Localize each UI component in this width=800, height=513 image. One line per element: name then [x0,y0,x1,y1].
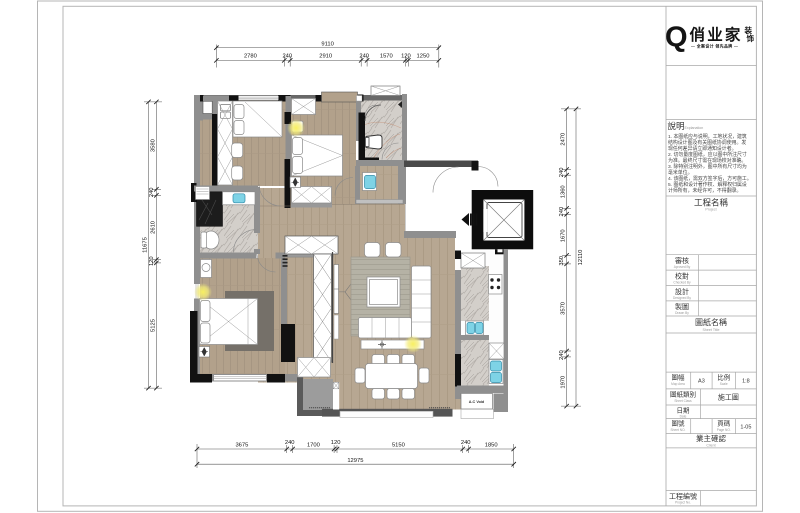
svg-text:120: 120 [331,440,341,446]
svg-text:圖紙名稱: 圖紙名稱 [695,317,727,327]
svg-text:1-05: 1-05 [740,425,751,431]
svg-text:毫米单位。: 毫米单位。 [668,169,692,176]
svg-text:1360: 1360 [561,185,567,198]
svg-text:1670: 1670 [561,229,567,242]
svg-text:240: 240 [149,187,155,197]
svg-text:2780: 2780 [244,54,257,60]
svg-text:120: 120 [401,54,411,60]
svg-text:饰: 饰 [747,33,755,43]
svg-text:俏业家: 俏业家 [690,25,743,44]
svg-text:计师所有，未经许可，不得翻录。: 计师所有，未经许可，不得翻录。 [668,187,741,194]
svg-text:業主確認: 業主確認 [696,433,726,443]
svg-text:工程名稱: 工程名稱 [694,198,729,208]
svg-text:12110: 12110 [578,250,584,266]
svg-text:5125: 5125 [150,319,156,332]
svg-text:工程編號: 工程編號 [669,492,697,501]
svg-text:圖號: 圖號 [672,419,686,428]
svg-text:圖紙類别: 圖紙類别 [670,390,696,399]
svg-text:3. 除特别注明外，图中所有尺寸均为: 3. 除特别注明外，图中所有尺寸均为 [668,163,747,170]
svg-text:120: 120 [149,256,155,266]
svg-text:1:8: 1:8 [742,379,750,385]
svg-text:Page NO.: Page NO. [717,428,731,432]
svg-text:240: 240 [359,54,369,60]
svg-text:Checked By: Checked By [673,281,691,285]
svg-text:Date: Date [680,415,687,419]
svg-text:說明Explanation: 說明Explanation [668,121,704,131]
svg-text:A3: A3 [698,379,705,385]
svg-text:圖幅: 圖幅 [672,373,686,382]
svg-text:校對: 校對 [675,272,689,281]
svg-text:Q: Q [665,22,688,54]
svg-text:A.C Void: A.C Void [469,400,485,404]
svg-text:Sheet NO.: Sheet NO. [671,428,686,432]
svg-text:比例: 比例 [717,373,730,382]
svg-text:Aproved By: Aproved By [674,265,691,269]
svg-text:5150: 5150 [392,443,405,449]
svg-text:4. 该图纸，需双方签字后，方可施工。: 4. 该图纸，需双方签字后，方可施工。 [668,175,752,182]
svg-text:12975: 12975 [347,458,363,464]
svg-text:製圖: 製圖 [675,302,689,311]
svg-text:Map Area: Map Area [671,382,685,386]
svg-text:施工圖: 施工圖 [718,393,739,402]
svg-text:日期: 日期 [677,407,691,415]
svg-text:審核: 審核 [675,256,689,265]
svg-text:Sheet Title: Sheet Title [703,328,720,332]
svg-text:Designed By: Designed By [673,296,691,300]
svg-text:頁碼: 頁碼 [717,420,731,428]
svg-text:240: 240 [461,440,471,446]
svg-text:Drawn By: Drawn By [675,311,689,315]
svg-text:350: 350 [559,256,565,266]
svg-text:5. 图纸和设计著作权、解释权归属设: 5. 图纸和设计著作权、解释权归属设 [668,181,747,188]
svg-text:240: 240 [559,168,565,178]
svg-text:为准。最终尺寸需在现场校对准确。: 为准。最终尺寸需在现场校对准确。 [668,157,746,164]
svg-text:Project No.: Project No. [675,501,691,505]
svg-text:Scale: Scale [720,382,728,386]
svg-text:240: 240 [285,440,295,446]
svg-text:設計: 設計 [675,287,689,296]
svg-text:2910: 2910 [319,54,332,60]
svg-text:1250: 1250 [417,54,430,60]
svg-text:3570: 3570 [561,302,567,315]
svg-text:结构设计图及有关图纸协调使用。发: 结构设计图及有关图纸协调使用。发 [668,139,746,146]
svg-text:2610: 2610 [150,221,156,234]
svg-text:2470: 2470 [561,133,567,146]
svg-text:240: 240 [559,350,565,360]
svg-text:9110: 9110 [321,42,333,48]
svg-text:240: 240 [559,207,565,217]
svg-text:2. 切勿量度图纸，应以图中所注尺寸: 2. 切勿量度图纸，应以图中所注尺寸 [668,151,747,158]
svg-text:3580: 3580 [150,139,156,152]
svg-text:240: 240 [282,54,292,60]
svg-text:Client: Client [706,444,715,448]
svg-text:Sheet Class: Sheet Class [674,399,692,403]
svg-text:3675: 3675 [235,443,248,449]
svg-text:11675: 11675 [142,237,148,253]
svg-text:1970: 1970 [561,376,567,389]
svg-text:现任何差异请立即通知设计者。: 现任何差异请立即通知设计者。 [668,145,736,152]
svg-text:— 全案设计 领先品牌 —: — 全案设计 领先品牌 — [691,44,738,49]
svg-text:1. 本图纸应与说明，工地状况，建筑: 1. 本图纸应与说明，工地状况，建筑 [668,133,747,140]
svg-text:1570: 1570 [380,54,393,60]
svg-text:1850: 1850 [485,443,498,449]
svg-text:Project: Project [705,208,716,212]
svg-text:1700: 1700 [307,443,320,449]
